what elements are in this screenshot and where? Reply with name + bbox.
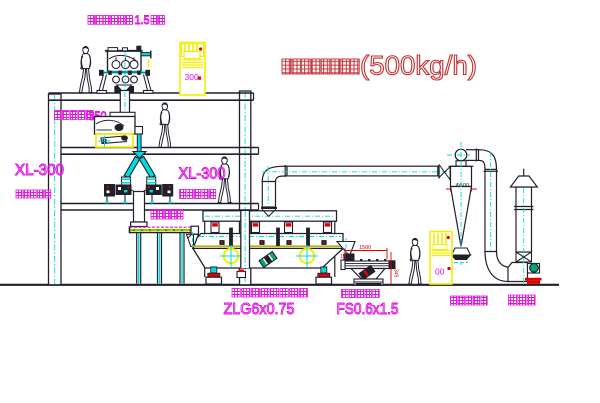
svg-text:1.5: 1.5 xyxy=(135,13,150,27)
svg-text:15: 15 xyxy=(340,254,346,260)
svg-text:300: 300 xyxy=(185,72,199,82)
svg-text:(500kg/h): (500kg/h) xyxy=(360,51,477,81)
svg-text:XL-300: XL-300 xyxy=(179,166,226,183)
svg-text:XL-300: XL-300 xyxy=(15,162,64,179)
svg-text:00: 00 xyxy=(435,267,445,277)
svg-text:ZLG6x0.75: ZLG6x0.75 xyxy=(224,301,295,318)
svg-text:FS0.6x1.5: FS0.6x1.5 xyxy=(337,301,399,318)
svg-text:345: 345 xyxy=(393,269,399,278)
